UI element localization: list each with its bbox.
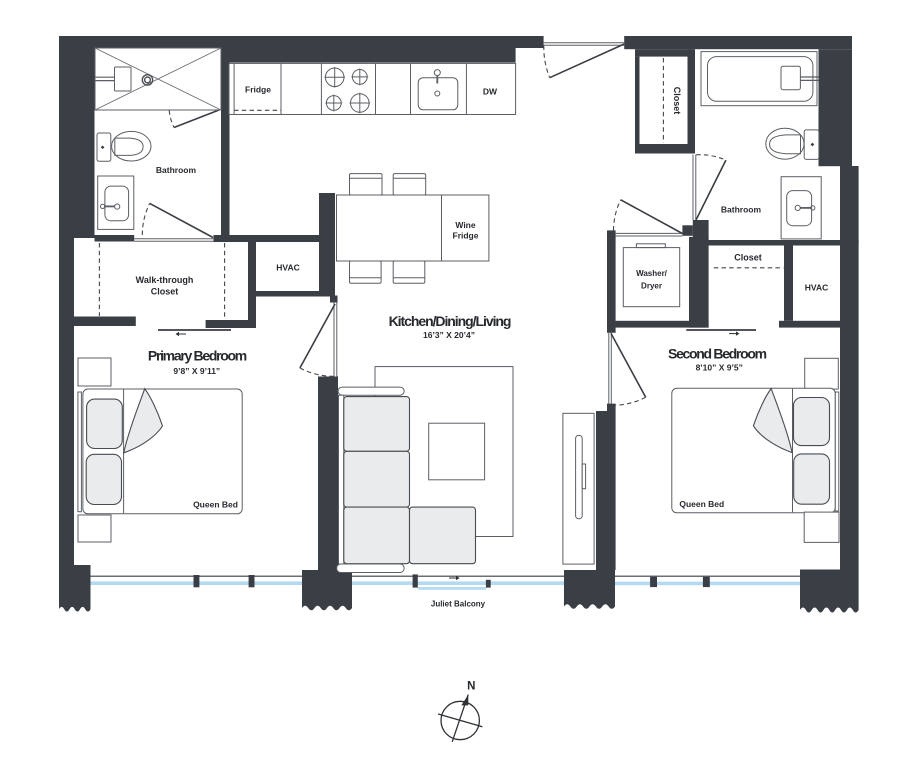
svg-text:Fridge: Fridge: [453, 231, 479, 241]
svg-text:Juliet Balcony: Juliet Balcony: [431, 600, 486, 609]
svg-text:Bathroom: Bathroom: [156, 165, 197, 175]
svg-text:8’10” X 9’5”: 8’10” X 9’5”: [696, 363, 743, 373]
svg-text:HVAC: HVAC: [805, 283, 828, 293]
svg-text:Kitchen/Dining/Living: Kitchen/Dining/Living: [389, 313, 511, 329]
svg-text:Dryer: Dryer: [641, 282, 662, 291]
svg-text:Bathroom: Bathroom: [721, 205, 762, 215]
svg-text:Wine: Wine: [455, 220, 476, 230]
svg-text:Queen Bed: Queen Bed: [679, 499, 724, 509]
svg-text:Washer/: Washer/: [636, 269, 668, 278]
svg-text:N: N: [467, 680, 475, 692]
svg-text:HVAC: HVAC: [276, 263, 299, 273]
svg-text:Closet: Closet: [734, 253, 762, 263]
svg-text:16’3” X 20’4”: 16’3” X 20’4”: [423, 330, 475, 340]
svg-text:Primary Bedroom: Primary Bedroom: [148, 348, 247, 364]
svg-text:Closet: Closet: [151, 287, 179, 297]
svg-text:Closet: Closet: [672, 87, 682, 115]
svg-text:Walk-through: Walk-through: [136, 275, 194, 285]
svg-text:Queen Bed: Queen Bed: [193, 500, 238, 510]
svg-text:Second Bedroom: Second Bedroom: [668, 345, 767, 361]
svg-text:9’8” X 9’11”: 9’8” X 9’11”: [173, 366, 220, 376]
svg-text:DW: DW: [483, 87, 498, 97]
svg-text:Fridge: Fridge: [245, 85, 271, 95]
